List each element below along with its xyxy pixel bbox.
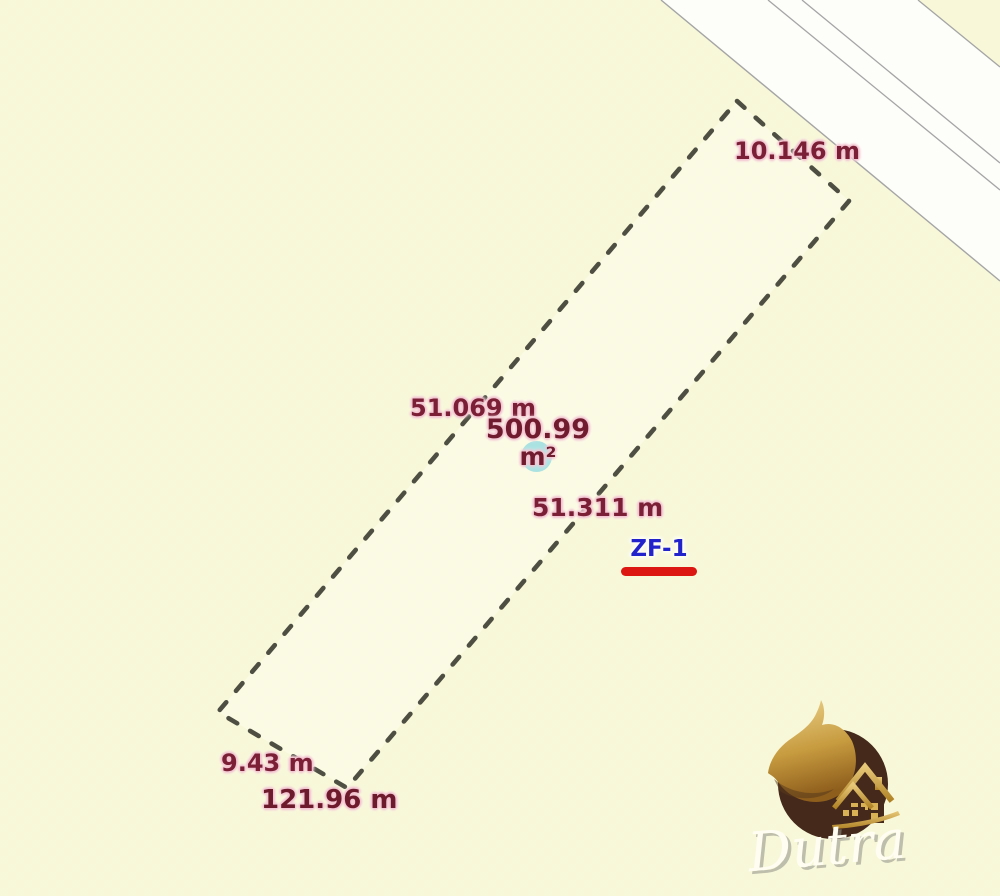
measurement-label-bottom-side: 9.43 m — [221, 749, 314, 777]
zone-underline — [621, 567, 697, 576]
measurement-label-perimeter: 121.96 m — [261, 785, 397, 815]
map-canvas: 10.146 m 51.069 m 51.311 m 9.43 m 121.96… — [0, 0, 1000, 896]
parcel-area-label: 500.99 m² — [478, 416, 598, 469]
dutra-logo: Dutra Dutra — [740, 695, 916, 895]
measurement-label-top-side: 10.146 m — [734, 137, 860, 165]
zone-code: ZF-1 — [618, 536, 700, 562]
parcel-area-unit: m² — [478, 444, 598, 469]
parcel-area-value: 500.99 — [478, 416, 598, 443]
measurement-label-right-side: 51.311 m — [532, 493, 663, 522]
zone-label-block: ZF-1 — [618, 536, 700, 576]
